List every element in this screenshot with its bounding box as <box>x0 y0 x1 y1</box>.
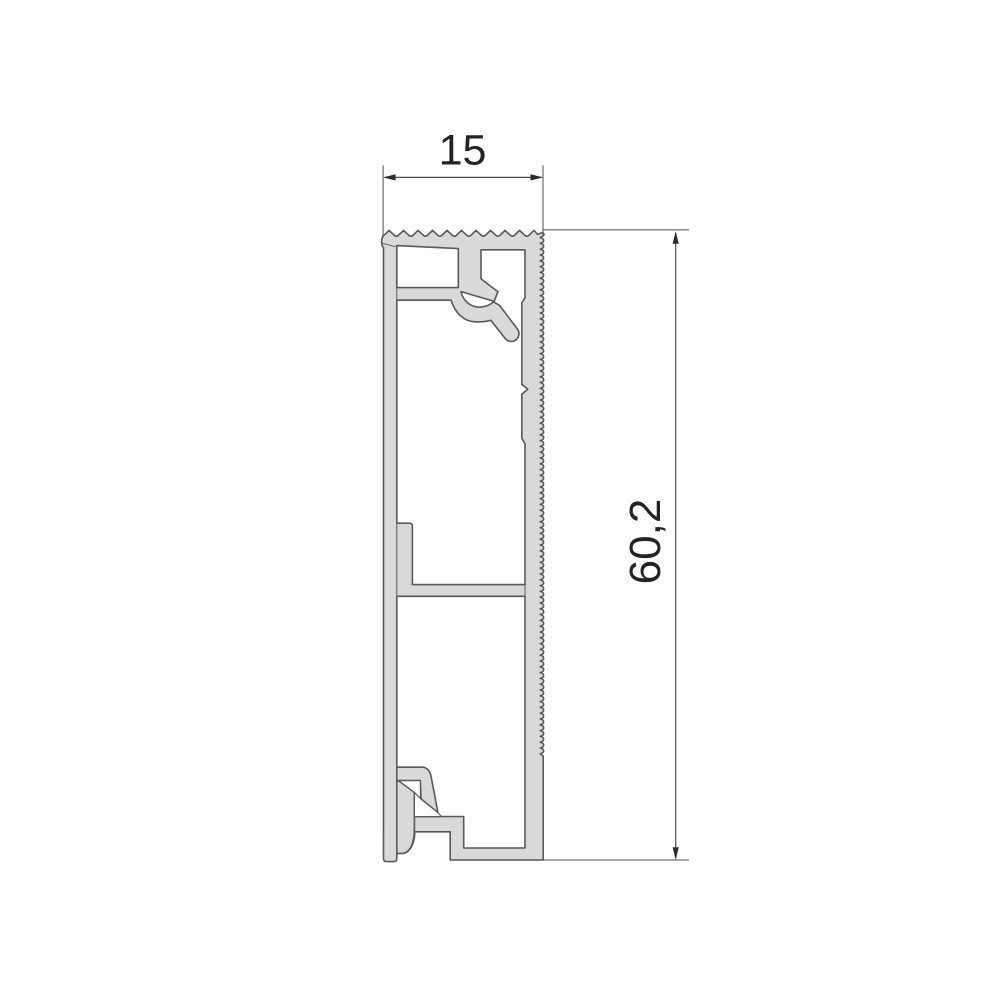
svg-text:15: 15 <box>439 127 487 175</box>
svg-text:60,2: 60,2 <box>621 499 670 585</box>
